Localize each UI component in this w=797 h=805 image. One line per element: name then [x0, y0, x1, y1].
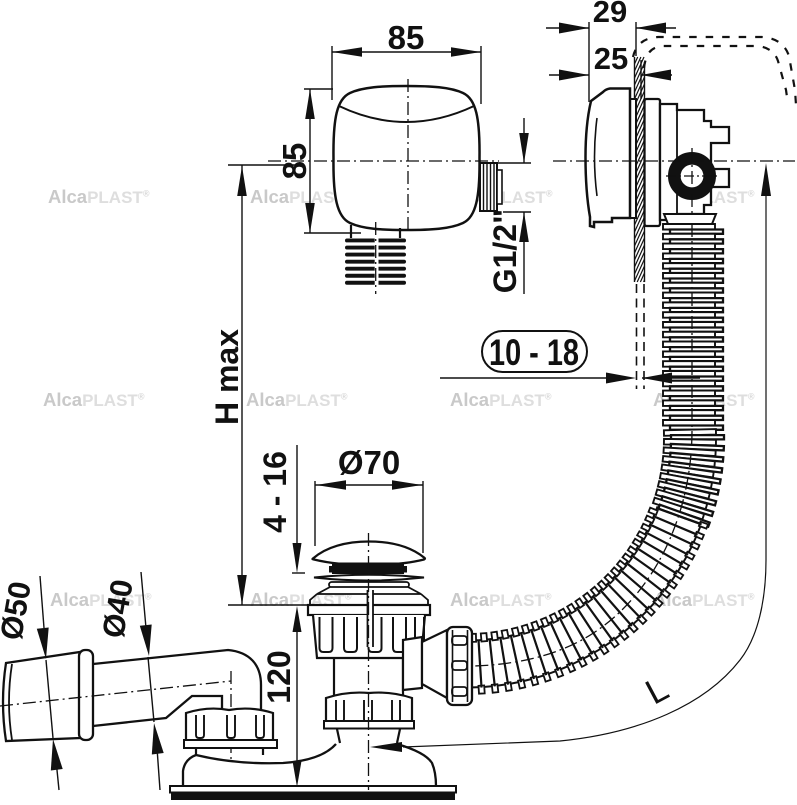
svg-text:AlcaPLAST®: AlcaPLAST® — [450, 589, 552, 610]
svg-text:AlcaPLAST®: AlcaPLAST® — [450, 389, 552, 410]
svg-text:Ø70: Ø70 — [338, 444, 400, 481]
svg-text:120: 120 — [261, 650, 297, 703]
svg-text:AlcaPLAST®: AlcaPLAST® — [43, 389, 145, 410]
svg-text:G1/2": G1/2" — [487, 209, 523, 294]
svg-text:4 - 16: 4 - 16 — [257, 451, 293, 533]
svg-text:29: 29 — [593, 0, 627, 29]
svg-text:25: 25 — [594, 41, 628, 76]
svg-text:85: 85 — [388, 19, 425, 56]
svg-text:85: 85 — [276, 143, 313, 180]
svg-text:H max: H max — [209, 329, 245, 425]
svg-text:AlcaPLAST®: AlcaPLAST® — [246, 389, 348, 410]
svg-text:10 - 18: 10 - 18 — [489, 332, 579, 373]
svg-text:AlcaPLAST®: AlcaPLAST® — [48, 186, 150, 207]
